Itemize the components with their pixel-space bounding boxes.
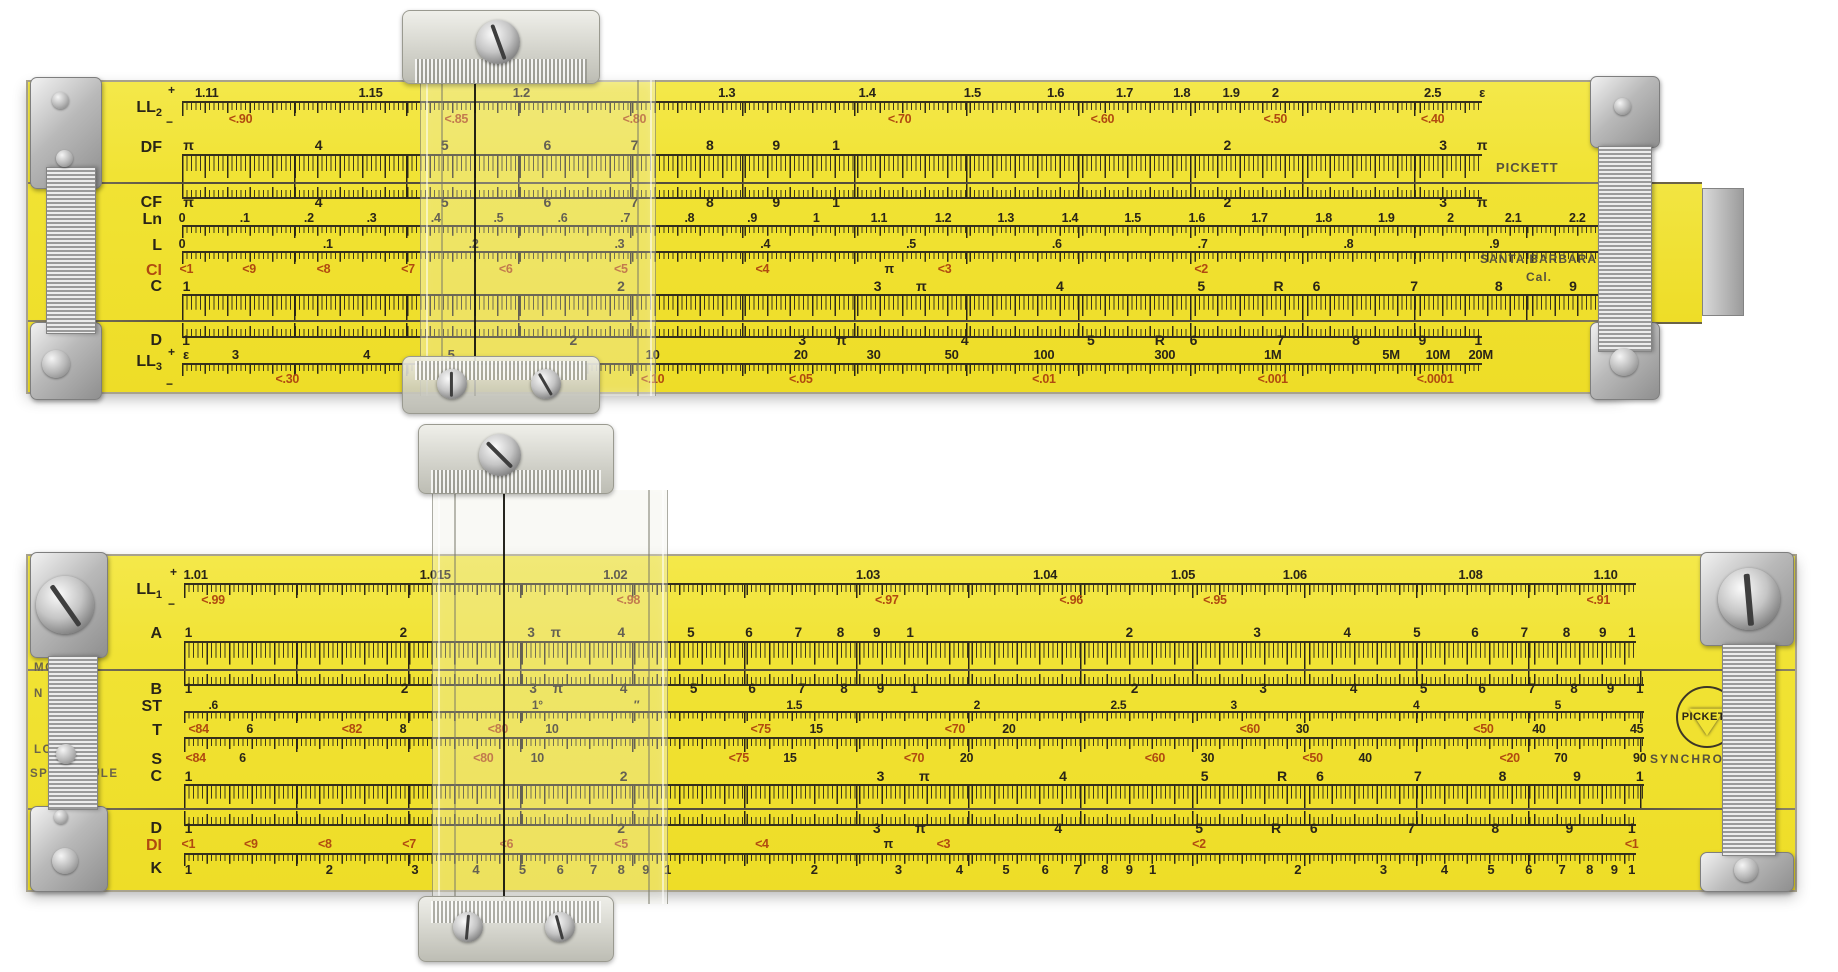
scale-label-LL2: LL2 bbox=[110, 100, 162, 119]
cursor-rail bbox=[438, 490, 440, 904]
slide-lock-ribbed-bar[interactable] bbox=[1598, 146, 1652, 352]
scale-label-L: L bbox=[110, 238, 162, 254]
scale-label-DF: DF bbox=[110, 140, 162, 156]
scale-CI-numbers: <1<9<8<7<6<5<4π<3<2<1 bbox=[182, 263, 1640, 277]
slide-lock-ribbed-bar[interactable] bbox=[1722, 644, 1776, 856]
scale-label-LL1: LL1 bbox=[110, 582, 162, 601]
scale-LL2-numbers: 1.111.151.21.31.41.51.61.71.81.922.5ε bbox=[182, 86, 1482, 102]
scale-LL1-numbers: <.99<.98<.97<.96<.95<.91 bbox=[184, 594, 1636, 608]
dome-screw bbox=[52, 848, 78, 874]
cursor-rail bbox=[662, 490, 664, 904]
back-scale-layer: LL1+−1.011.0151.021.031.041.051.061.081.… bbox=[28, 556, 1795, 890]
bracket-rivet bbox=[1614, 98, 1631, 115]
cursor-rail bbox=[441, 80, 443, 396]
cursor-bottom-cap-back[interactable] bbox=[418, 896, 614, 962]
slide-seam bbox=[28, 320, 1622, 322]
scale-DI-numbers: <1<9<8<7<6<5<4π<3<2<1 bbox=[184, 838, 1636, 852]
cursor-screw[interactable] bbox=[453, 912, 483, 942]
small-rivet bbox=[54, 810, 68, 824]
maker-name: PICKETT bbox=[1496, 160, 1559, 175]
scale-label-ST: ST bbox=[110, 699, 162, 715]
scale-LL2-numbers: <.90<.85<.80<.70<.60<.50<.40 bbox=[182, 113, 1482, 127]
cursor-rail bbox=[454, 490, 456, 904]
plus-mark: + bbox=[170, 566, 184, 578]
scale-label-C: C bbox=[110, 279, 162, 295]
scale-LL3-numbers: <.30<.20<.10<.05<.01<.001<.0001 bbox=[182, 373, 1482, 388]
scale-label-A: A bbox=[110, 626, 162, 642]
cursor-screw[interactable] bbox=[531, 369, 561, 399]
maker-state: Cal. bbox=[1526, 270, 1552, 284]
scale-C-numbers: 123π45R67891 bbox=[182, 279, 1640, 295]
scale-Ln-numbers: 0.1.2.3.4.5.6.7.8.911.11.21.31.41.51.61.… bbox=[182, 212, 1640, 226]
scale-C-ticks bbox=[184, 784, 1644, 809]
cursor-screw[interactable] bbox=[476, 20, 520, 64]
minus-mark: − bbox=[166, 116, 180, 128]
bracket-rivet bbox=[52, 92, 69, 109]
cursor-screw[interactable] bbox=[437, 369, 467, 399]
scale-label-CF: CF bbox=[110, 195, 162, 211]
dome-screw bbox=[1610, 348, 1638, 376]
dome-screw bbox=[1734, 858, 1758, 882]
cursor-screw[interactable] bbox=[479, 434, 521, 476]
cursor-screw[interactable] bbox=[545, 912, 575, 942]
slide-lock-ribbed-bar[interactable] bbox=[48, 656, 98, 810]
plus-mark: + bbox=[168, 346, 182, 358]
dome-screw bbox=[42, 350, 70, 378]
cursor-rail bbox=[650, 80, 652, 396]
front-scale-layer: LL2+−1.111.151.21.31.41.51.61.71.81.922.… bbox=[28, 82, 1622, 392]
cursor-rail bbox=[426, 80, 428, 396]
scale-DF-ticks bbox=[182, 154, 1482, 184]
pickett-slide-rule-photo: LL2+−1.111.151.21.31.41.51.61.71.81.922.… bbox=[0, 0, 1838, 972]
scale-D-numbers: 123π45R67891 bbox=[182, 333, 1482, 349]
scale-label-D: D bbox=[110, 333, 162, 349]
cursor-rail bbox=[648, 490, 650, 904]
cursor-bottom-cap-front[interactable] bbox=[402, 356, 600, 414]
slide-lock-ribbed-bar[interactable] bbox=[46, 167, 96, 334]
cursor-hairline bbox=[474, 80, 476, 396]
maker-city: SANTA BARBARA bbox=[1480, 252, 1597, 266]
scale-T-ticks bbox=[184, 737, 1644, 752]
scale-label-K: K bbox=[110, 861, 162, 877]
scale-label-LL3: LL3 bbox=[110, 354, 162, 373]
scale-label-B: B bbox=[110, 682, 162, 698]
minus-mark: − bbox=[166, 378, 180, 390]
scale-S-numbers: <846<8010<7515<7020<6030<5040<207090 bbox=[184, 752, 1644, 767]
bracket-screw bbox=[1718, 568, 1780, 630]
scale-C-ticks bbox=[182, 294, 1640, 321]
scale-LL1-numbers: 1.011.0151.021.031.041.051.061.081.10 bbox=[184, 568, 1636, 584]
scale-T-numbers: <846<828<8010<7515<7020<6030<504045 bbox=[184, 723, 1644, 738]
slide-rule-back: LL1+−1.011.0151.021.031.041.051.061.081.… bbox=[28, 556, 1795, 890]
cursor-rail bbox=[637, 80, 639, 396]
scale-B-numbers: 123π4567891234567891 bbox=[184, 682, 1644, 698]
dome-screw bbox=[56, 744, 76, 764]
scale-label-CI: CI bbox=[110, 263, 162, 279]
slide-end-cap bbox=[1702, 188, 1744, 316]
cursor-hairline bbox=[503, 490, 505, 904]
scale-CF-numbers: π456789123π bbox=[182, 195, 1482, 211]
scale-A-numbers: 123π4567891234567891 bbox=[184, 626, 1636, 642]
scale-label-DI: DI bbox=[110, 838, 162, 854]
cursor-glass-back[interactable] bbox=[432, 490, 668, 904]
minus-mark: − bbox=[168, 598, 182, 610]
scale-C-numbers: 123π45R67891 bbox=[184, 769, 1644, 785]
plus-mark: + bbox=[168, 84, 182, 96]
scale-K-numbers: 1234567891234567891234567891 bbox=[184, 863, 1636, 879]
scale-A-ticks bbox=[184, 641, 1636, 670]
slide-seam bbox=[28, 808, 1795, 810]
scale-label-S: S bbox=[110, 752, 162, 768]
scale-D-numbers: 123π45R67891 bbox=[184, 821, 1636, 837]
synchro-tagline: SYNCHRO bbox=[1650, 752, 1724, 766]
bracket-screw bbox=[36, 576, 94, 634]
cursor-glass-front[interactable] bbox=[420, 80, 656, 396]
bracket-rivet bbox=[56, 150, 73, 167]
slide-rule-front: LL2+−1.111.151.21.31.41.51.61.71.81.922.… bbox=[28, 82, 1622, 392]
scale-label-D: D bbox=[110, 821, 162, 837]
scale-L-numbers: 0.1.2.3.4.5.6.7.8.91 bbox=[182, 238, 1640, 252]
scale-LL3-numbers: ε345102030501003001M5M10M20M bbox=[182, 348, 1482, 364]
scale-DF-numbers: π456789123π bbox=[182, 138, 1482, 155]
scale-label-Ln: Ln bbox=[110, 212, 162, 228]
scale-label-T: T bbox=[110, 723, 162, 739]
